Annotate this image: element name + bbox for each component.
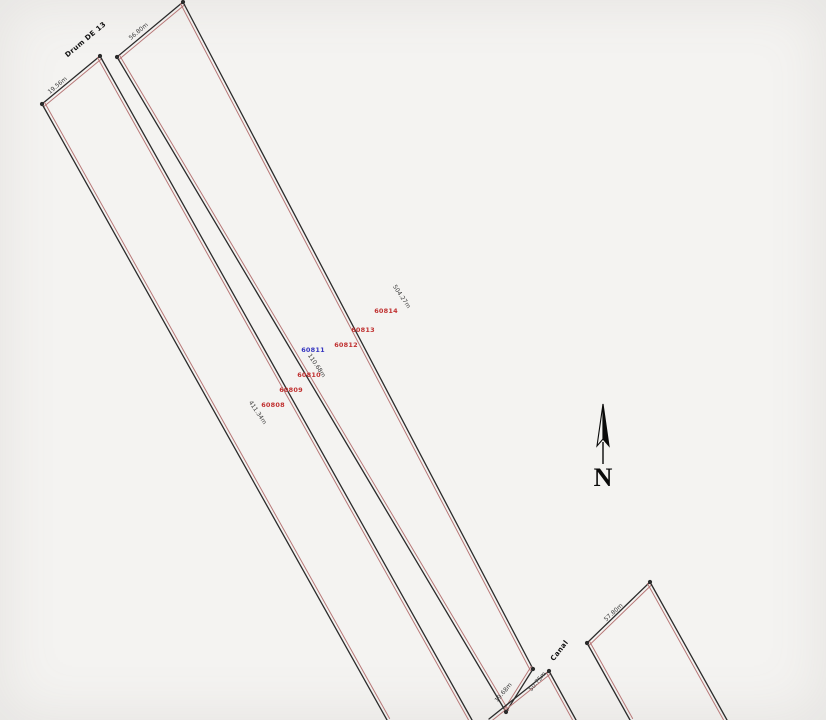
parcel-geometry [0, 0, 826, 720]
map-canvas: 60808 60809 60810 60811 60812 60813 6081… [0, 0, 826, 720]
north-arrow-icon: N [580, 398, 626, 490]
north-letter: N [594, 463, 613, 490]
